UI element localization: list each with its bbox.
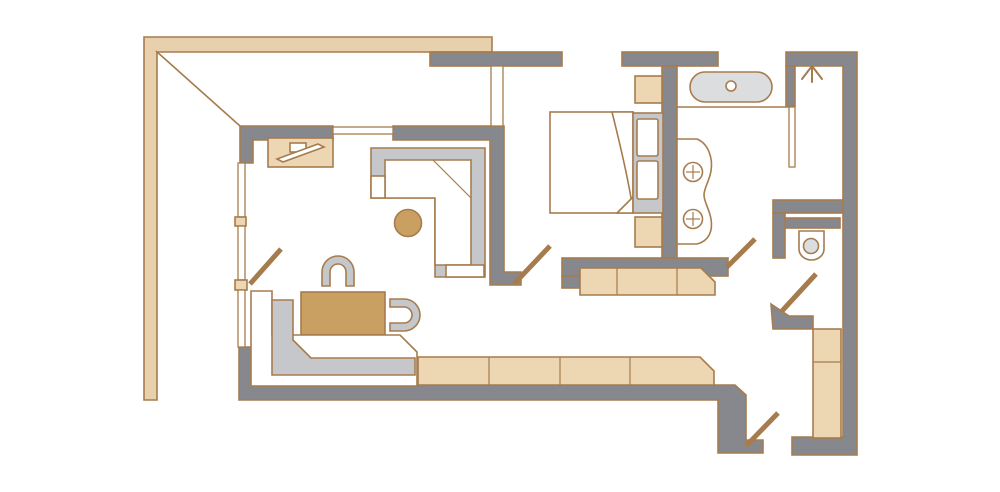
floor-plan [0,0,1000,492]
window-left-a [238,163,245,217]
bed-bath-divider-wall [662,66,677,258]
entry-area [813,329,841,438]
tub-drain [726,81,736,91]
work-table [301,292,385,335]
pillow-bottom [637,161,658,199]
walls [239,52,857,455]
toilet-bowl [804,239,819,254]
sofa-armrest-bottom [446,265,484,277]
toilet-room-top-wall [773,200,843,213]
balcony-door [250,249,281,284]
wardrobe [813,329,841,438]
corner-sofa-seat [385,160,471,265]
window-mullion-a [235,217,246,226]
floor-plan-drawing [0,0,1000,492]
shower-glass [789,107,795,167]
toilet-room-left-wall [773,213,785,258]
bathroom [677,66,824,260]
terrace-edge-diagonal [156,51,240,126]
toilet-room-bottom-wall [771,304,813,329]
window-mullion-b [235,280,247,290]
chair-top [322,256,354,286]
round-ottoman [395,210,422,237]
mid-wall-step [562,276,580,288]
sink-top [684,163,703,182]
shower-head-symbol [802,66,822,82]
nightstand-top [635,76,662,103]
shower-wall-stub [786,66,795,106]
long-sideboard [418,357,714,385]
nightstand-bottom [635,217,662,247]
window-left-b [238,226,245,280]
window-left-c [238,290,245,347]
foyer-partition [491,66,503,126]
foyer-top-wall [430,52,562,66]
bedroom-top-wall [622,52,718,66]
bedroom-door [514,246,550,284]
corridor-door [727,239,755,267]
chair-right [390,299,420,331]
sink-bottom [684,210,703,229]
window-top [333,127,393,134]
bedroom-dresser [580,268,715,295]
pillow-top [637,119,658,156]
sofa-armrest-left [371,176,385,198]
toilet-room-shelf-bar [783,218,840,228]
toilet-door [782,274,816,311]
